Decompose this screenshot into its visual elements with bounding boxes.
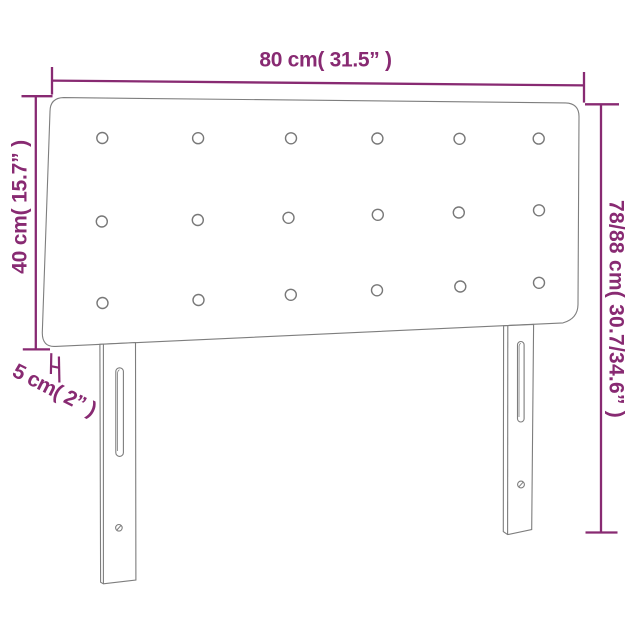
svg-text:40 cm( 15.7” ): 40 cm( 15.7” ) — [9, 140, 32, 274]
svg-text:78/88 cm( 30.7/34.6” ): 78/88 cm( 30.7/34.6” ) — [605, 200, 628, 418]
svg-text:80 cm( 31.5” ): 80 cm( 31.5” ) — [259, 48, 391, 71]
